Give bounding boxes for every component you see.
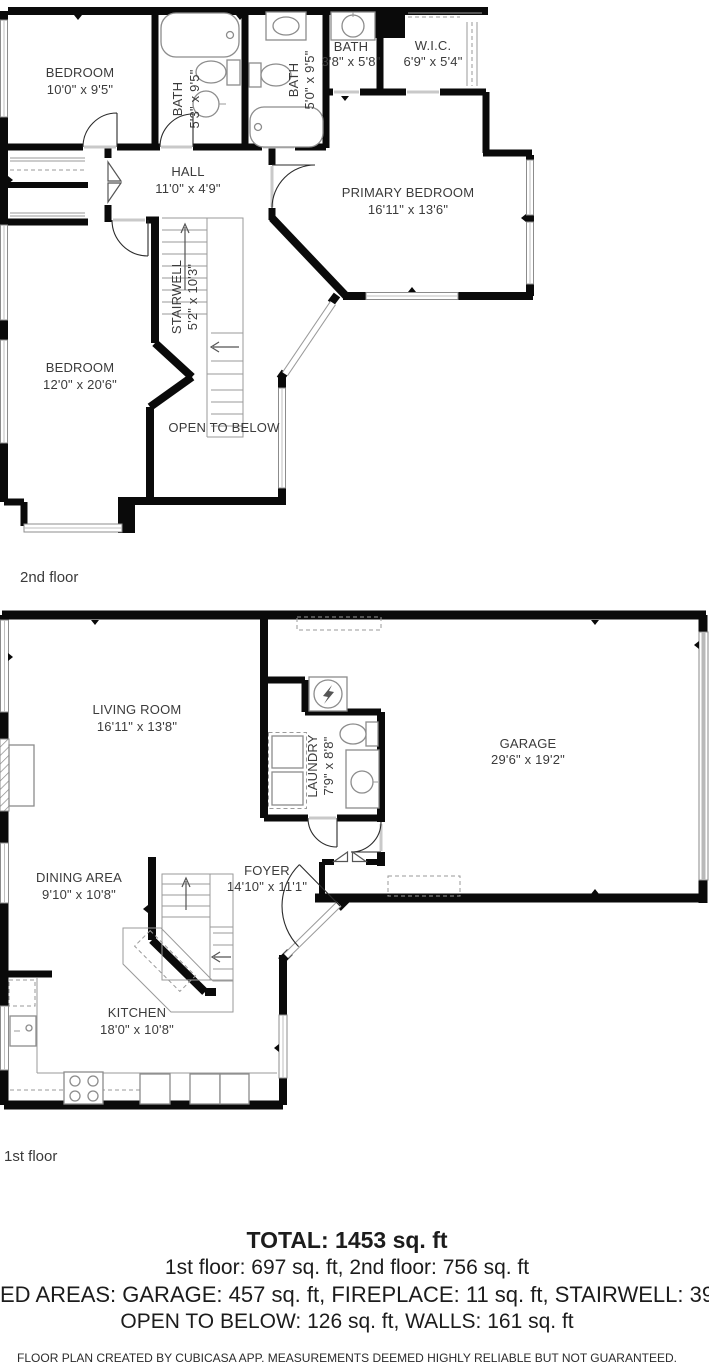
door-arc xyxy=(351,822,381,852)
thresholds-1f xyxy=(309,817,383,852)
room-label: BEDROOM xyxy=(46,360,115,375)
room-label: FOYER xyxy=(244,863,290,878)
room-label: DINING AREA xyxy=(36,870,122,885)
room-dims: 12'0" x 20'6" xyxy=(43,377,117,392)
excluded-areas: ED AREAS: GARAGE: 457 sq. ft, FIREPLACE:… xyxy=(0,1281,694,1308)
room-label: PRIMARY BEDROOM xyxy=(342,185,475,200)
laundry-sink-icon xyxy=(346,750,379,808)
toilet-icon xyxy=(340,722,378,746)
fixtures-2f xyxy=(161,12,482,147)
kitchen-sink-icon xyxy=(10,1016,36,1046)
diagonal-window-entry xyxy=(284,902,341,958)
stove-icon xyxy=(64,1072,103,1104)
total-area: TOTAL: 1453 sq. ft xyxy=(0,1226,694,1254)
bifold-door-icon xyxy=(334,852,366,862)
door-arc xyxy=(308,818,337,847)
stairs-left-arrow-icon xyxy=(211,342,239,352)
chimney xyxy=(373,7,405,38)
stairs-up-arrow-icon xyxy=(182,878,190,910)
water-heater-icon xyxy=(309,677,347,711)
bathtub-icon xyxy=(161,13,239,57)
room-dims: 29'6" x 19'2" xyxy=(491,752,565,767)
wall-ticks-1f xyxy=(8,620,699,1052)
room-label: BATH xyxy=(334,39,369,54)
floorplan-page: BEDROOM 10'0" x 9'5" LIVING ROOM BATH 5'… xyxy=(0,0,709,1372)
room-label: BATH xyxy=(286,63,301,98)
floorplan-drawing: BEDROOM 10'0" x 9'5" LIVING ROOM BATH 5'… xyxy=(0,0,709,1210)
room-dims: 16'11" x 13'8" xyxy=(97,719,178,734)
room-label: HALL xyxy=(171,164,204,179)
room-dims: 3'8" x 5'8" xyxy=(321,54,380,69)
floor-areas: 1st floor: 697 sq. ft, 2nd floor: 756 sq… xyxy=(0,1254,694,1281)
sink-icon xyxy=(331,12,375,40)
area-summary: TOTAL: 1453 sq. ft 1st floor: 697 sq. ft… xyxy=(0,1226,694,1335)
room-dims: 5'0" x 9'5" xyxy=(302,50,317,109)
room-labels-2f: BEDROOM 10'0" x 9'5" LIVING ROOM BATH 5'… xyxy=(43,38,474,435)
door-arc xyxy=(112,220,148,256)
room-label: BEDROOM xyxy=(46,65,115,80)
room-dims: 9'10" x 10'8" xyxy=(42,887,116,902)
counter-cabinet xyxy=(220,1074,249,1104)
room-label: KITCHEN xyxy=(108,1005,166,1020)
windows-1f xyxy=(1,620,342,1078)
room-dims: 5'2" x 10'3" xyxy=(185,264,200,331)
counter-cabinet xyxy=(190,1074,220,1104)
room-label: LAUNDRY xyxy=(305,734,320,797)
room-dims: 16'11" x 13'6" xyxy=(368,202,449,217)
open-below-walls-areas: OPEN TO BELOW: 126 sq. ft, WALLS: 161 sq… xyxy=(0,1308,694,1335)
fireplace-icon xyxy=(0,739,34,811)
room-dims: 14'10" x 11'1" xyxy=(227,879,308,894)
bathtub-icon xyxy=(250,107,323,147)
room-label: LIVING ROOM xyxy=(93,702,182,717)
dishwasher-icon xyxy=(135,931,196,992)
disclaimer-text: FLOOR PLAN CREATED BY CUBICASA APP. MEAS… xyxy=(0,1351,694,1365)
pantry-cabinet xyxy=(9,980,35,1006)
room-label: OPEN TO BELOW xyxy=(168,420,280,435)
sink-icon xyxy=(266,12,306,40)
stairs-left-arrow-icon xyxy=(212,952,231,962)
washer-icon xyxy=(272,736,303,768)
room-dims: 18'0" x 10'8" xyxy=(100,1022,174,1037)
room-dims: 11'0" x 4'9" xyxy=(155,181,221,196)
room-dims: 10'0" x 9'5" xyxy=(47,82,114,97)
room-dims: 6'9" x 5'4" xyxy=(403,54,462,69)
bifold-door-icon xyxy=(108,162,121,202)
floor-label-1st: 1st floor xyxy=(4,1148,57,1165)
toilet-icon xyxy=(196,60,240,85)
room-dims: 5'3" x 9'5" xyxy=(187,69,202,128)
toilet-icon xyxy=(249,63,291,87)
room-label: W.I.C. xyxy=(415,38,452,53)
floor-label-2nd: 2nd floor xyxy=(20,569,78,586)
garage-door xyxy=(699,632,708,880)
door-arc xyxy=(272,165,315,208)
counter-cabinet xyxy=(140,1074,170,1104)
room-label: GARAGE xyxy=(500,736,557,751)
room-label: BATH xyxy=(170,82,185,117)
diagonal-window-2f xyxy=(283,301,336,375)
room-dims: 7'9" x 8'8" xyxy=(321,736,336,795)
door-arc xyxy=(83,113,117,147)
first-floor-plan: LIVING ROOM 16'11" x 13'8" LAUNDRY 7'9" … xyxy=(0,615,708,1165)
room-label: STAIRWELL xyxy=(169,260,184,334)
dryer-icon xyxy=(272,772,303,805)
second-floor-plan: BEDROOM 10'0" x 9'5" LIVING ROOM BATH 5'… xyxy=(1,7,534,586)
